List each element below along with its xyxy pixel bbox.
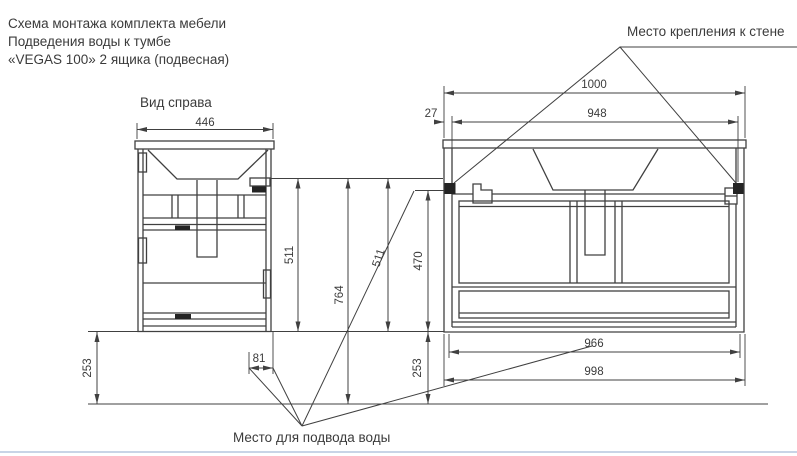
side-body-outline [138,149,271,332]
side-lower-drawer [143,283,266,319]
bottom-accent-line [0,451,797,453]
extension-lines [88,86,745,386]
side-view-cabinet [135,141,274,332]
side-right-rail [264,270,271,298]
front-view-cabinet [443,140,746,332]
front-body-outline [444,148,744,332]
dim-front-floor-gap-253: 253 [412,358,424,377]
dim-mount-offset-27: 27 [425,108,438,120]
front-mount-left [445,183,456,194]
side-view-black-details [175,187,266,320]
side-body-inner-edges [143,149,266,332]
dim-mount-span-948: 948 [587,108,606,120]
dim-side-floor-gap-253: 253 [82,358,94,377]
water-supply-leader [249,191,592,426]
dim-front-total-1000: 1000 [581,79,607,91]
side-upper-drawer [143,195,266,230]
side-sink-basin [148,150,268,179]
front-drain-pipe [585,190,605,255]
side-countertop [135,141,274,149]
leader-lines [249,47,797,426]
dim-side-height-511: 511 [284,246,296,264]
dim-front-body-470: 470 [413,251,425,270]
dim-side-height-764: 764 [334,285,346,305]
side-wall-bracket [250,178,270,186]
front-top-drawer-details [459,201,729,283]
dim-side-width: 446 [195,117,214,129]
front-body-inner-edges [452,148,736,327]
front-top-drawer [459,201,729,283]
side-drawer-clip-lower [175,314,191,319]
front-sink-basin [533,149,658,190]
dimension-texts: 446 511 764 511 470 253 253 81 1000 27 9… [82,79,607,378]
schematic-page: Схема монтажа комплекта мебели Подведени… [0,0,797,456]
front-bottom-drawer [459,291,729,318]
front-left-clip [473,184,492,203]
technical-drawing: 446 511 764 511 470 253 253 81 1000 27 9… [0,0,797,456]
dim-front-height-511: 511 [371,247,388,268]
dim-bottom-998: 998 [584,366,603,378]
dim-water-offset-81: 81 [253,353,266,365]
side-drawer-clip-upper [175,226,190,231]
side-bracket-fill [252,187,266,193]
front-mount-right [733,183,744,194]
dim-bottom-inner-966: 966 [584,338,603,350]
wall-mount-leader [454,47,797,183]
